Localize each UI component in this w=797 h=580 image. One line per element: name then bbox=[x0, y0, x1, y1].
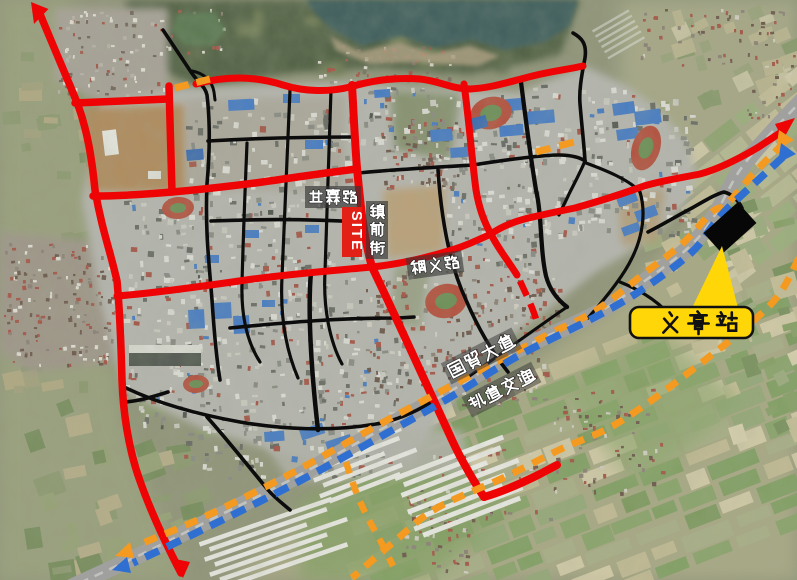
svg-text:SITE: SITE bbox=[348, 211, 364, 252]
